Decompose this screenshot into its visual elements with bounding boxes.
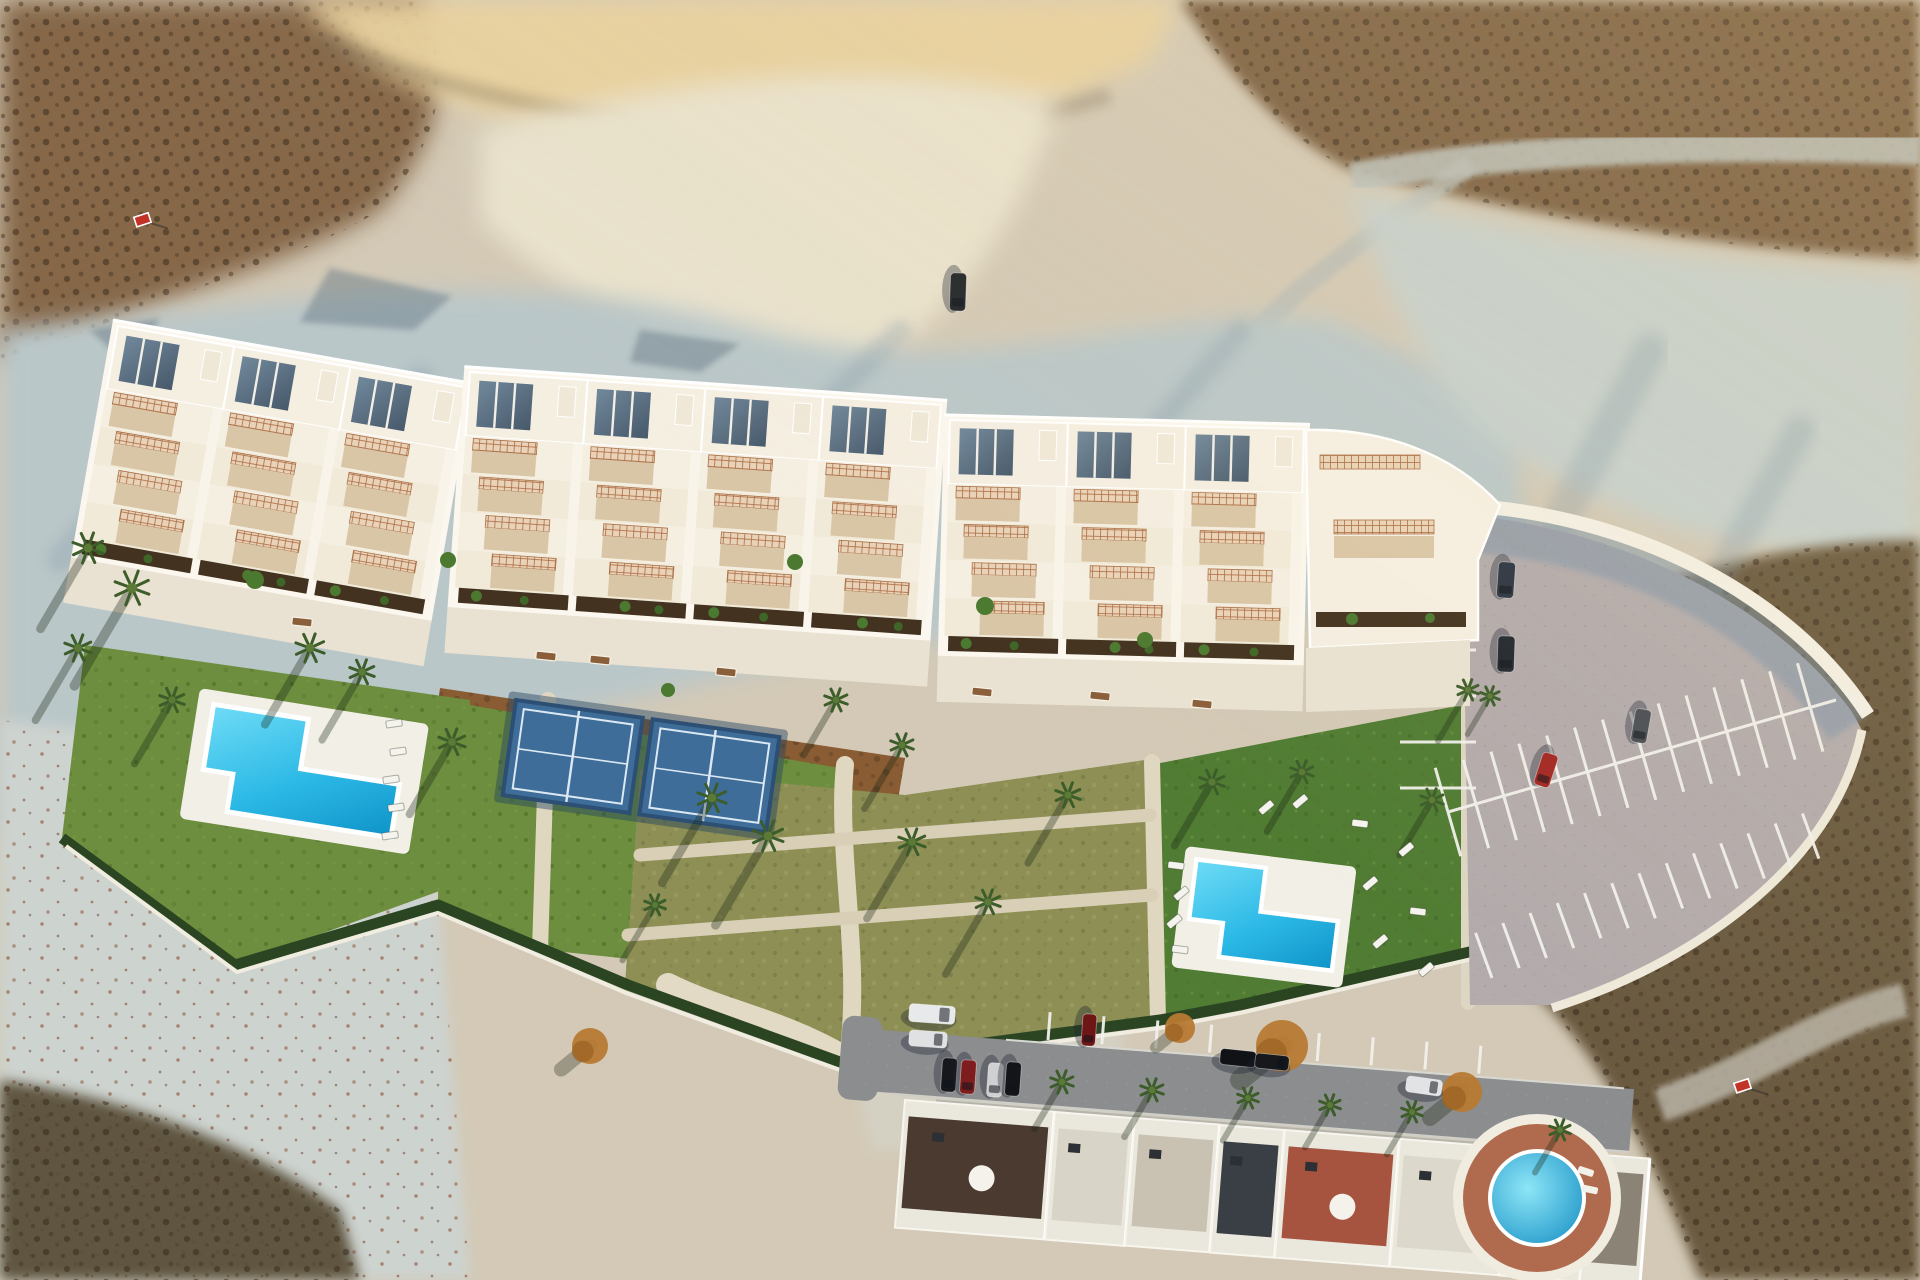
warm-sunlight-overlay (0, 0, 1920, 1280)
aerial-scene-canvas (0, 0, 1920, 1280)
aerial-development-photo (0, 0, 1920, 1280)
